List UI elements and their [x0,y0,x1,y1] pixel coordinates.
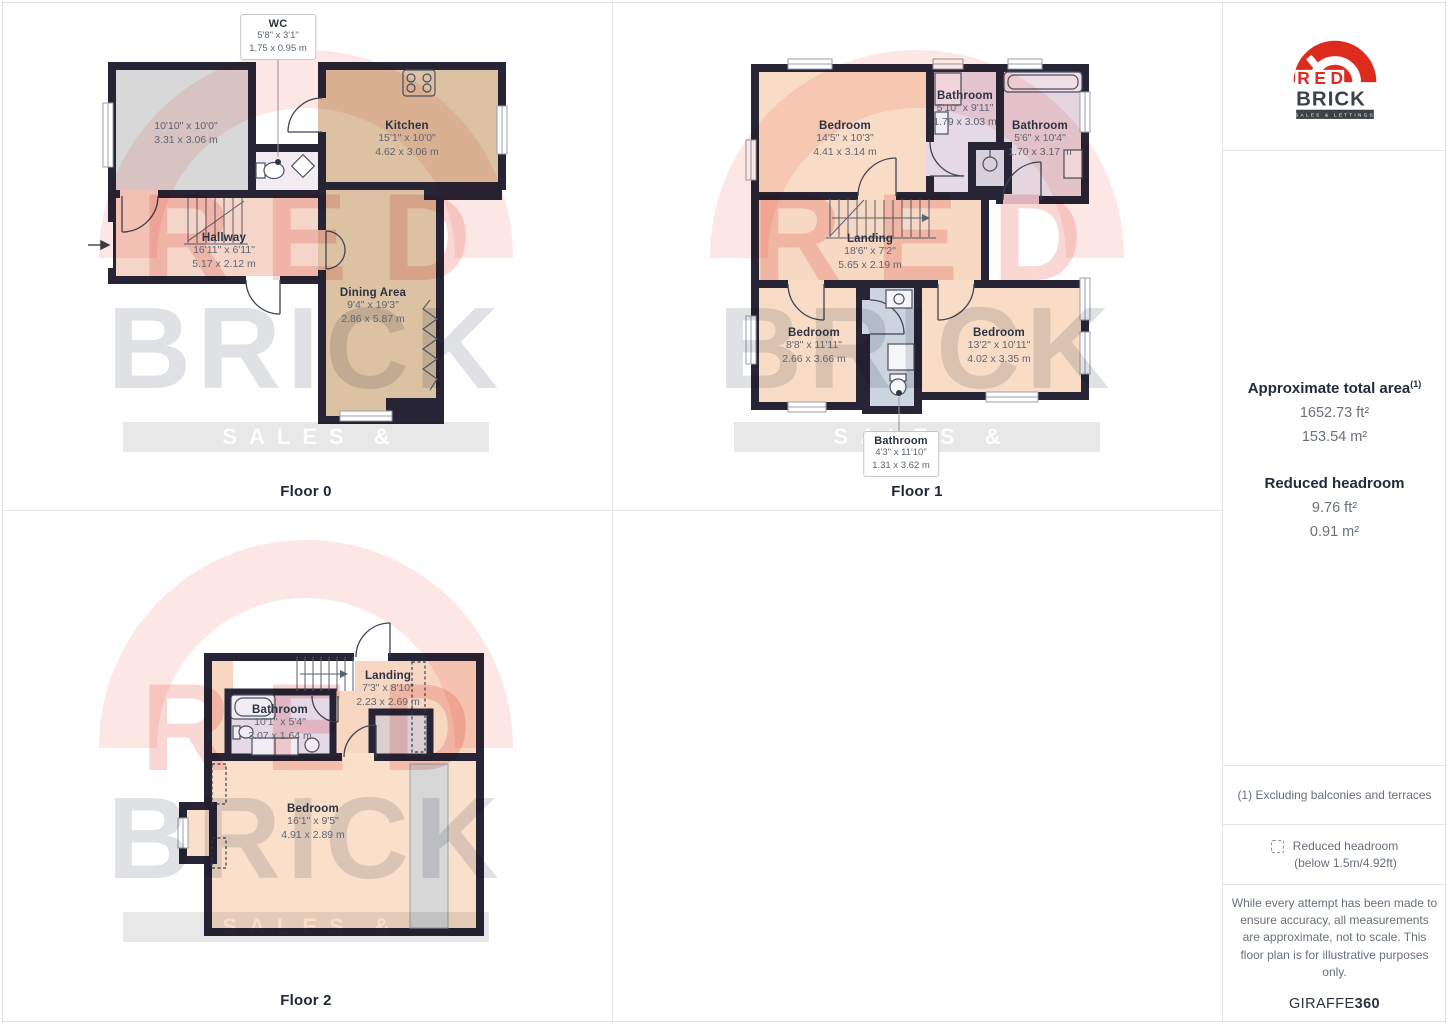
room-label-bedroom-br: Bedroom 13'2" x 10'11" 4.02 x 3.35 m [967,327,1031,367]
legend-row: Reduced headroom (below 1.5m/4.92ft) [1271,838,1398,870]
logo-red-text: RED [1297,68,1347,88]
room-label-bathroom-tr: Bathroom 5'6" x 10'4" 1.70 x 3.17 m [1008,120,1072,160]
floorplan-floor1: RED BRICK SALES & LETTINGS Bedroom 14'5"… [612,0,1222,510]
giraffe360-brand: GIRAFFE360 [1289,996,1380,1012]
floor1-caption: Floor 1 [612,483,1222,500]
floorplan-page: RED BRICK SALES & LETTINGS WC 5'8" x 3'1… [0,0,1448,1024]
room-label-landing: Landing 7'3" x 8'10" 2.23 x 2.69 m [356,670,420,710]
floor1-plan-drawing [700,15,1140,495]
wc-leader-dot [275,159,281,165]
total-area-block: Approximate total area(1) 1652.73 ft² 15… [1248,379,1422,445]
redbrick-logo: RED BRICK SALES & LETTINGS [1287,29,1383,123]
divider-vertical-1 [612,2,613,1022]
sloped-ceiling-zone [410,764,448,928]
headroom-ft-value: 9.76 ft² [1264,500,1404,516]
logo-tagline-text: SALES & LETTINGS [1295,112,1375,117]
disclaimer-text: While every attempt has been made to ens… [1231,895,1439,982]
floorplan-floor2: RED BRICK SALES & LETTINGS Landing 7'3" … [0,510,612,1024]
footnote-section: (1) Excluding balconies and terraces [1223,765,1446,824]
room-label-store: 10'10" x 10'0" 3.31 x 3.06 m [154,120,218,148]
area-title: Approximate total area(1) [1248,379,1422,397]
room-label-bedroom-tl: Bedroom 14'5" x 10'3" 4.41 x 3.14 m [813,120,877,160]
divider-horizontal [2,510,1222,511]
divider-vertical-2 [1222,2,1223,1022]
bathroom-callout: Bathroom 4'3" x 11'10" 1.31 x 3.62 m [863,431,939,477]
disclaimer-section: While every attempt has been made to ens… [1223,884,1446,1022]
area-m-value: 153.54 m² [1248,429,1422,445]
room-label-bathroom: Bathroom 10'1" x 5'4" 3.07 x 1.64 m [248,704,312,744]
room-label-hallway: Hallway 16'11" x 6'11" 5.17 x 2.12 m [192,232,256,272]
floor0-plan-drawing [85,8,525,478]
footnote-text: (1) Excluding balconies and terraces [1237,788,1431,802]
room-label-bedroom-bl: Bedroom 8'8" x 11'11" 2.66 x 3.66 m [782,327,846,367]
area-summary-section: Approximate total area(1) 1652.73 ft² 15… [1223,150,1446,767]
floor0-walls [112,66,502,420]
area-ft-value: 1652.73 ft² [1248,405,1422,421]
room-label-bedroom: Bedroom 16'1" x 9'5" 4.91 x 2.89 m [281,803,345,843]
dashed-square-icon [1271,840,1284,853]
info-sidebar: RED BRICK SALES & LETTINGS Approximate t… [1223,2,1446,1022]
room-label-kitchen: Kitchen 15'1" x 10'0" 4.62 x 3.06 m [375,120,439,160]
floor0-caption: Floor 0 [0,483,612,500]
logo-section: RED BRICK SALES & LETTINGS [1223,2,1446,150]
legend-section: Reduced headroom (below 1.5m/4.92ft) [1223,824,1446,884]
legend-text: Reduced headroom (below 1.5m/4.92ft) [1293,838,1398,870]
floor2-caption: Floor 2 [0,992,612,1009]
wc-callout: WC 5'8" x 3'1" 1.75 x 0.95 m [240,14,316,60]
room-label-bathroom-tm: Bathroom 5'10" x 9'11" 1.79 x 3.03 m [933,90,997,130]
room-label-landing: Landing 18'6" x 7'2" 5.65 x 2.19 m [838,233,902,273]
headroom-title: Reduced headroom [1264,475,1404,492]
bathroom-leader-dot [896,390,902,396]
floorplan-floor0: RED BRICK SALES & LETTINGS WC 5'8" x 3'1… [0,0,612,510]
room-label-dining: Dining Area 9'4" x 19'3" 2.86 x 5.87 m [340,287,406,327]
logo-brick-text: BRICK [1296,89,1366,111]
reduced-headroom-block: Reduced headroom 9.76 ft² 0.91 m² [1264,475,1404,540]
headroom-m-value: 0.91 m² [1264,524,1404,540]
